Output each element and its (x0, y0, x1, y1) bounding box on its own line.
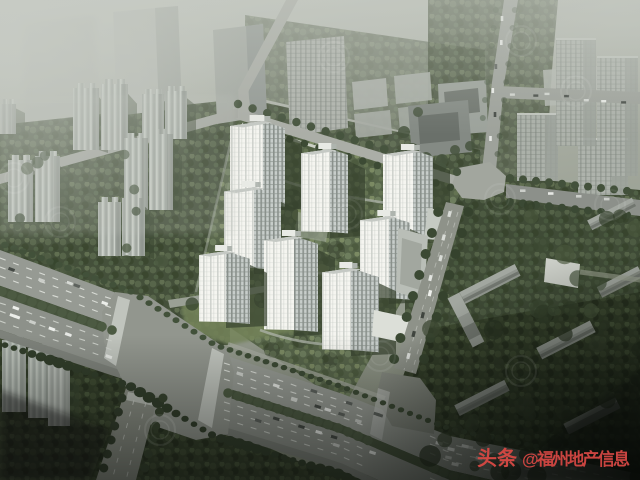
svg-text:头条: 头条 (477, 446, 518, 470)
svg-text:@福州地产信息: @福州地产信息 (522, 449, 630, 469)
